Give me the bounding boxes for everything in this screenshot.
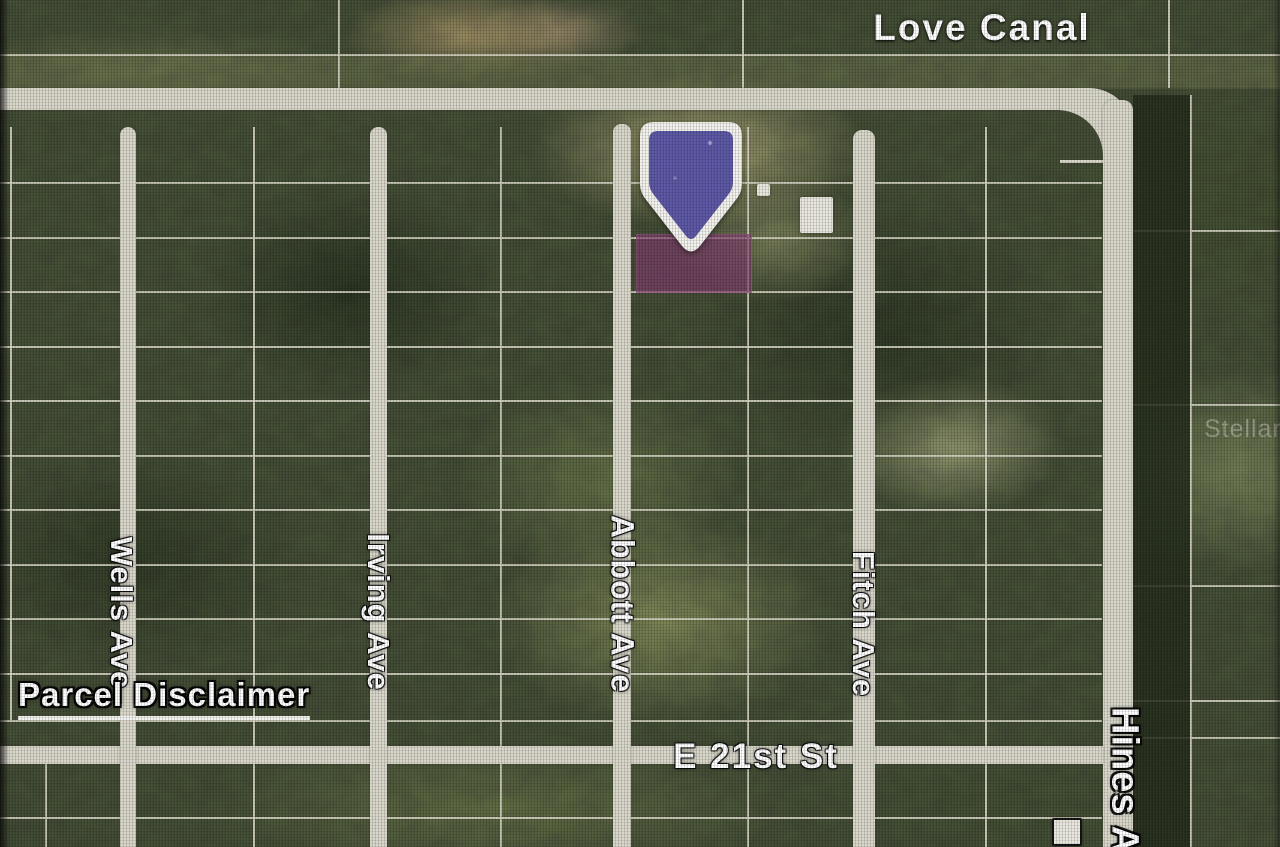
building-roof-small <box>757 184 770 196</box>
parcel-line <box>10 127 12 720</box>
parcel-line <box>1168 0 1170 88</box>
building-roof <box>800 197 833 233</box>
road-label-abbott-ave: Abbott Ave <box>604 515 641 693</box>
road-label-irving-ave: Irving Ave <box>360 533 396 691</box>
road-label-fitch-ave: Fitch Ave <box>845 551 881 697</box>
parcel-line <box>0 54 1280 56</box>
parcel-line <box>0 291 1102 293</box>
parcel-line <box>742 0 744 88</box>
parcel-line <box>1190 95 1192 847</box>
road-label-wells-ave: Wells Ave <box>103 537 139 690</box>
road-label-e-21st-st: E 21st St <box>673 737 839 777</box>
parcel-line <box>0 455 1102 457</box>
parcel-line <box>500 127 502 847</box>
road-wells-ave <box>120 127 136 847</box>
parcel-line <box>0 720 1102 722</box>
parcel-line <box>0 564 1102 566</box>
road-e-21st-st <box>0 746 1103 764</box>
parcel-line <box>0 182 1102 184</box>
parcel-line <box>0 817 1102 819</box>
road-irving-ave <box>370 127 387 847</box>
parcel-line <box>0 237 1102 239</box>
parcel-line <box>985 127 987 847</box>
parcel-line <box>0 673 1102 675</box>
parcel-disclaimer-link[interactable]: Parcel Disclaimer <box>18 676 310 720</box>
parcel-line <box>45 763 47 847</box>
road-fitch-ave <box>853 130 875 847</box>
parcel-line <box>338 0 340 88</box>
building-roof-bottom <box>1052 818 1082 846</box>
road-label-love-canal: Love Canal <box>873 7 1090 49</box>
parcel-line <box>0 346 1102 348</box>
parcel-line <box>0 509 1102 511</box>
property-marker-pin[interactable] <box>634 116 748 262</box>
road-love-canal <box>0 88 1075 110</box>
mls-watermark: Stellar MLS <box>1204 415 1280 444</box>
road-abbott-ave <box>613 124 631 847</box>
parcel-line <box>0 400 1102 402</box>
parcel-line <box>253 127 255 847</box>
road-label-hines-ave: Hines Ave <box>1103 707 1146 847</box>
satellite-map[interactable]: Love Canal Wells Ave Irving Ave Abbott A… <box>0 0 1280 847</box>
parcel-line <box>0 618 1102 620</box>
